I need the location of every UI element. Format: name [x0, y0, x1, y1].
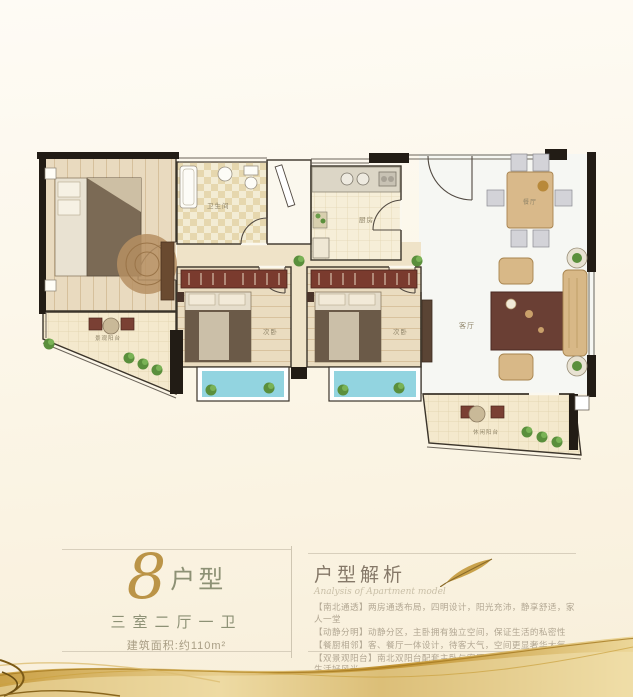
kitchen-label: 厨房: [359, 215, 374, 224]
bathroom-label: 卫生间: [207, 201, 230, 210]
feather-icon: [440, 557, 496, 587]
living-room-rug: [491, 292, 563, 350]
unit-type-label: 户型: [170, 566, 226, 594]
floor-plan: 卫生间 厨房 餐厅 客厅 次卧 次卧 景观阳台 休闲阳台: [29, 142, 604, 472]
living-label: 客厅: [459, 321, 475, 330]
master-wardrobe: [161, 242, 174, 300]
analysis-title: 户型解析: [314, 560, 406, 587]
bay-window-b: [329, 367, 421, 401]
analysis-subtitle: Analysis of Apartment model: [314, 587, 576, 597]
kitchen-basket: [313, 212, 327, 228]
bay-window-a: [197, 367, 289, 401]
fridge: [313, 238, 329, 258]
floorplan-poster: 卫生间 厨房 餐厅 客厅 次卧 次卧 景观阳台 休闲阳台 8户型 三室二厅一卫 …: [0, 0, 633, 697]
bedroom-a-label: 次卧: [263, 327, 278, 336]
bedroom-b-label: 次卧: [393, 327, 408, 336]
gold-ribbon-decoration: [0, 600, 633, 697]
kitchen-counter: [312, 167, 400, 192]
analysis-title-row: 户型解析: [314, 560, 576, 587]
right-balcony-label: 休闲阳台: [473, 428, 499, 436]
tv-cabinet: [422, 300, 432, 362]
unit-title: 8户型: [62, 546, 291, 608]
dining-label: 餐厅: [523, 198, 537, 206]
left-balcony-label: 景观阳台: [95, 334, 121, 342]
